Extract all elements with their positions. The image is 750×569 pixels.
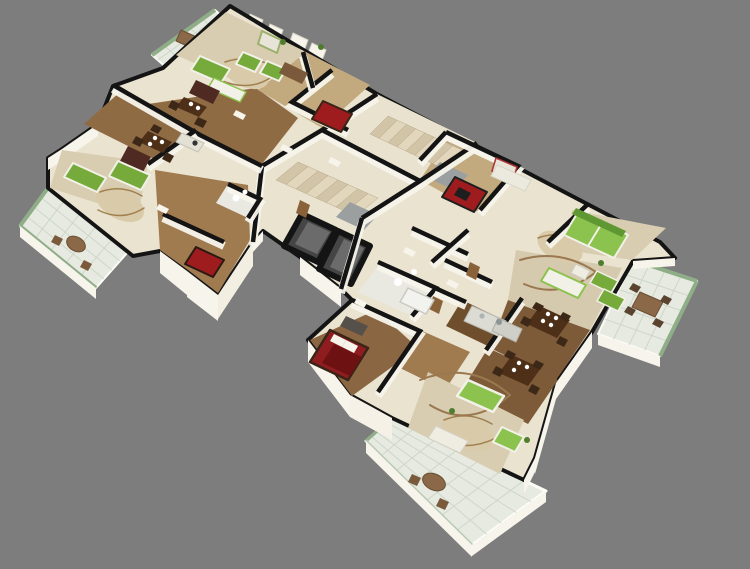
plant-1 (280, 39, 286, 45)
plate-c-4 (549, 323, 553, 327)
plate-d-3 (512, 368, 516, 372)
sink-b (243, 190, 248, 195)
plate-b-2 (160, 140, 164, 144)
plant-2 (598, 260, 604, 266)
plant-3 (449, 408, 455, 414)
plate-c-1 (546, 312, 550, 316)
plate-c-2 (554, 316, 558, 320)
plate-a-1 (189, 102, 193, 106)
plate-d-2 (525, 365, 529, 369)
cooktop-b (192, 140, 197, 145)
plant-5 (318, 44, 324, 50)
plate-a-2 (196, 106, 200, 110)
stove-steel (496, 319, 502, 325)
sink-center (411, 269, 417, 275)
plant-4 (524, 437, 530, 443)
screenshot-root (0, 0, 750, 569)
toilet-center (394, 278, 402, 286)
plate-c-3 (541, 319, 545, 323)
plate-d-1 (517, 361, 521, 365)
toilet-b (233, 195, 240, 202)
sink-kitchen (479, 313, 484, 318)
floor-plan-svg (0, 0, 750, 569)
plate-b-3 (148, 142, 152, 146)
plate-b-1 (153, 136, 157, 140)
